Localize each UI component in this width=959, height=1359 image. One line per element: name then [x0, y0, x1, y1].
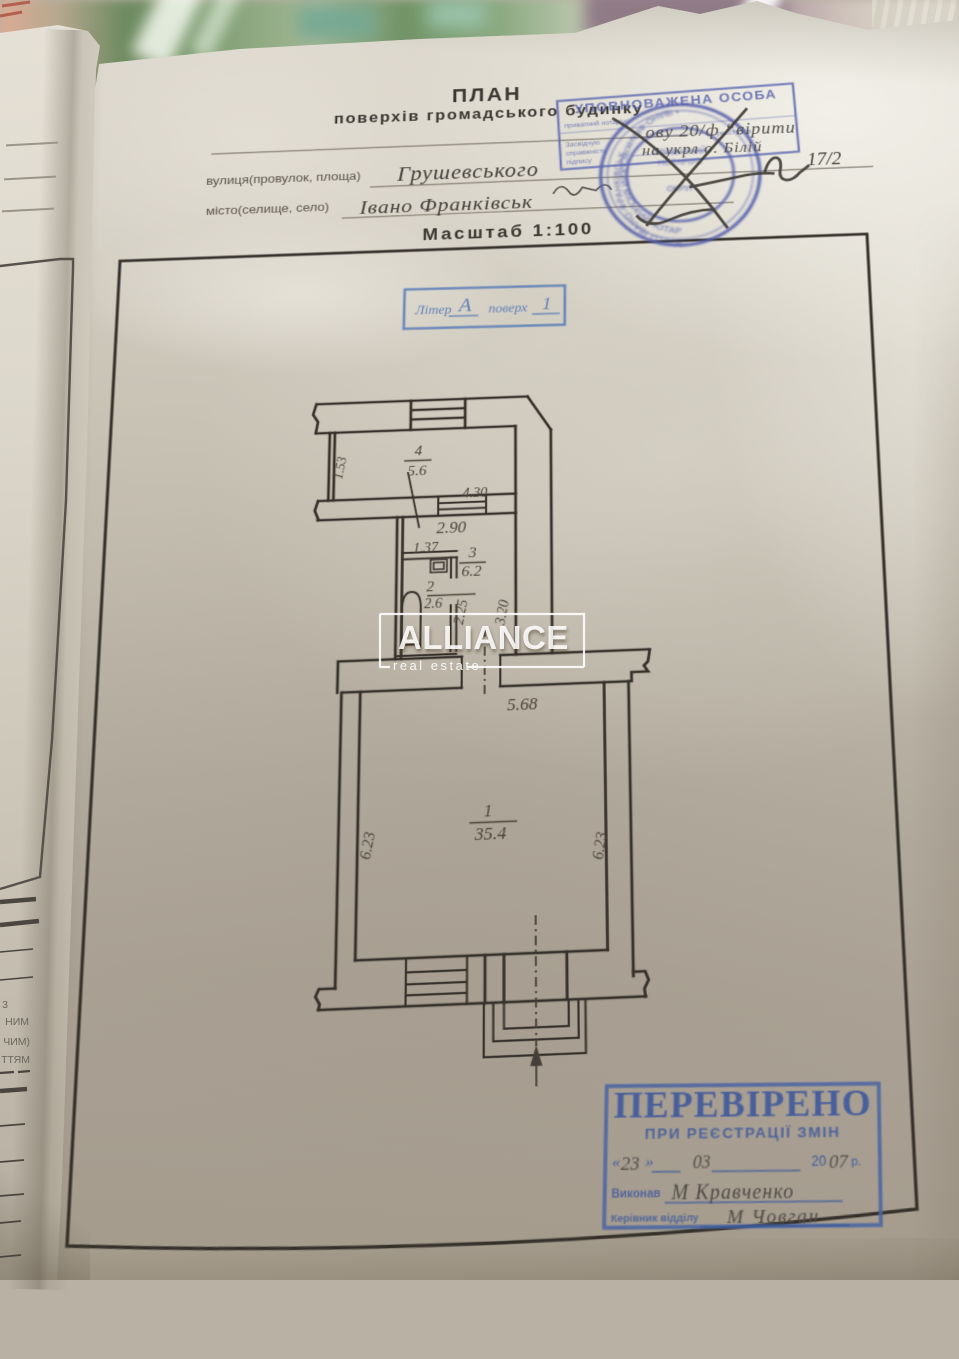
svg-text:real estate: real estate	[393, 658, 481, 673]
svg-text:ALLIANCE: ALLIANCE	[398, 619, 569, 656]
